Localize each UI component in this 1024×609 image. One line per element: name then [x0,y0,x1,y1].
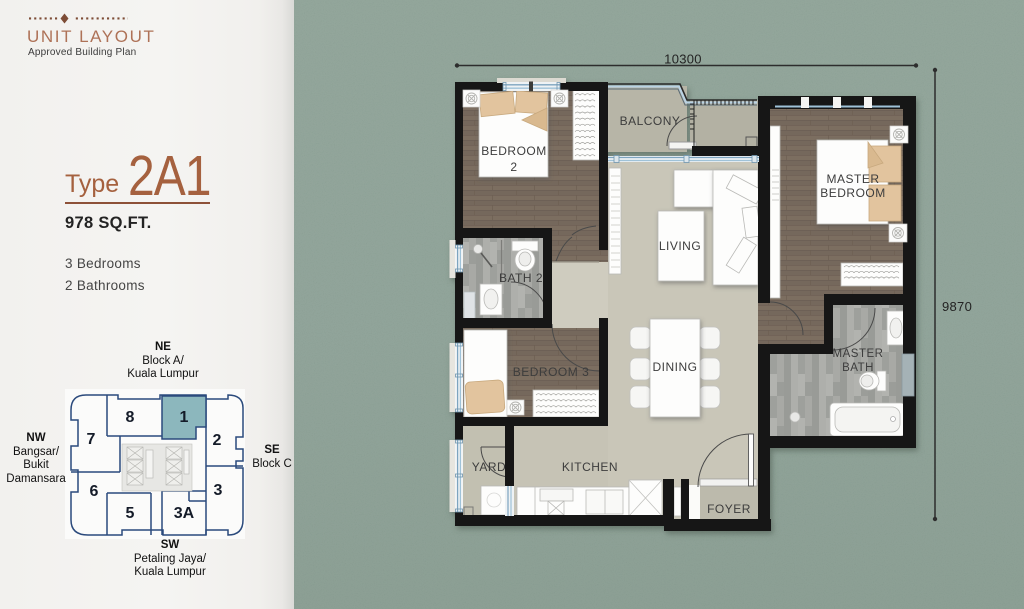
svg-text:10300: 10300 [664,52,702,67]
svg-text:2: 2 [510,160,517,174]
svg-text:LIVING: LIVING [659,239,701,253]
svg-text:BATH 2: BATH 2 [499,271,543,285]
svg-text:BEDROOM 3: BEDROOM 3 [513,365,590,379]
svg-text:9870: 9870 [942,299,972,314]
svg-text:YARD: YARD [472,460,506,474]
svg-text:BEDROOM: BEDROOM [820,186,886,200]
svg-text:FOYER: FOYER [707,502,751,516]
svg-text:BATH: BATH [842,362,874,374]
svg-text:DINING: DINING [653,360,698,374]
svg-text:BEDROOM: BEDROOM [481,144,547,158]
svg-text:KITCHEN: KITCHEN [562,460,618,474]
svg-text:BALCONY: BALCONY [620,114,681,128]
svg-text:MASTER: MASTER [833,348,884,360]
svg-text:MASTER: MASTER [826,172,879,186]
